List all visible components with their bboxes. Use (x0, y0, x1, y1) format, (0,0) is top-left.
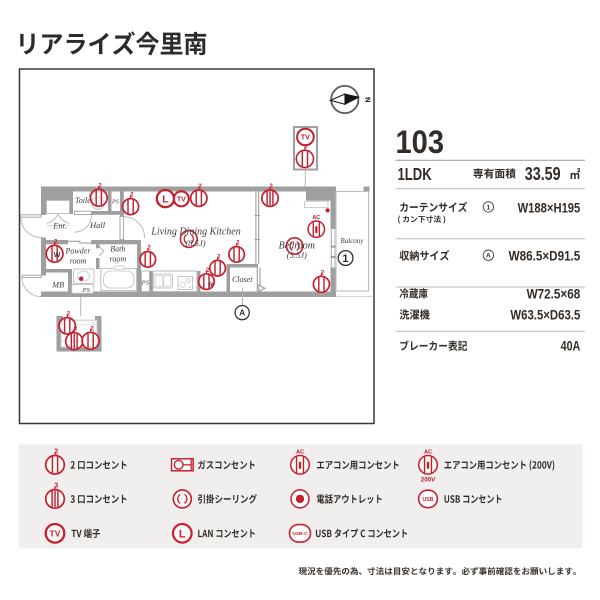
svg-text:R: R (208, 282, 213, 289)
svg-text:Powder: Powder (65, 247, 92, 256)
svg-text:L: L (179, 528, 186, 540)
svg-text:(8.5J): (8.5J) (185, 238, 205, 248)
svg-text:1: 1 (487, 204, 491, 211)
svg-text:PS: PS (82, 287, 91, 294)
svg-text:A: A (486, 253, 491, 260)
svg-text:103: 103 (396, 124, 445, 160)
svg-text:MB: MB (51, 281, 64, 290)
svg-text:TV: TV (50, 528, 61, 538)
svg-text:1LDK: 1LDK (398, 164, 432, 184)
svg-text:A: A (239, 308, 245, 318)
svg-text:(5.5J): (5.5J) (287, 250, 307, 260)
svg-text:USB-C: USB-C (292, 531, 308, 537)
svg-text:PS: PS (111, 199, 119, 205)
svg-text:200V: 200V (421, 476, 436, 483)
svg-text:W63.5×D63.5: W63.5×D63.5 (510, 306, 580, 322)
svg-text:Hall: Hall (89, 220, 106, 230)
svg-text:Ent.: Ent. (52, 220, 67, 230)
svg-text:PS: PS (141, 280, 150, 287)
svg-text:Living Dining Kitchen: Living Dining Kitchen (150, 227, 240, 238)
svg-text:2: 2 (305, 144, 308, 150)
svg-text:USB: USB (423, 497, 434, 503)
svg-text:40A: 40A (561, 337, 581, 353)
svg-text:room: room (110, 255, 127, 264)
svg-text:W86.5×D91.5: W86.5×D91.5 (509, 248, 581, 264)
svg-text:AC: AC (296, 449, 304, 455)
svg-text:TV: TV (301, 133, 310, 142)
svg-text:3: 3 (54, 483, 58, 490)
svg-text:TV: TV (177, 196, 186, 203)
svg-text:W188×H195: W188×H195 (518, 199, 581, 215)
svg-text:W72.5×68: W72.5×68 (527, 285, 581, 301)
svg-text:2: 2 (54, 449, 58, 456)
svg-text:Closet: Closet (232, 275, 253, 284)
svg-text:L: L (162, 193, 169, 205)
svg-text:W: W (54, 252, 61, 259)
svg-text:N: N (363, 97, 373, 103)
svg-text:room: room (70, 257, 87, 266)
svg-text:33.59: 33.59 (525, 163, 561, 184)
svg-text:1: 1 (342, 253, 348, 265)
svg-text:Balcony: Balcony (340, 237, 364, 245)
svg-text:AC: AC (424, 449, 432, 455)
svg-text:AC: AC (312, 215, 320, 221)
svg-text:Bath: Bath (110, 245, 125, 254)
